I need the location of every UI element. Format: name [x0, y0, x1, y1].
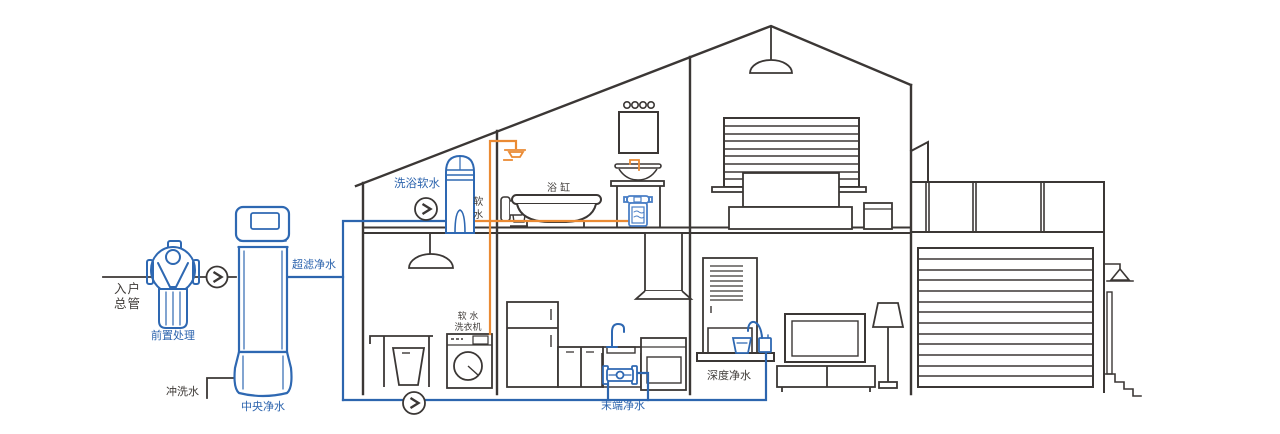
- shower-head-icon: [504, 150, 525, 160]
- fridge: [507, 302, 558, 387]
- pre-filter-unit: [147, 241, 199, 328]
- pendant-lamp-icon: [750, 60, 792, 73]
- bedroom: [712, 26, 892, 229]
- mirror: [619, 112, 658, 153]
- central-purifier-unit: [235, 207, 292, 396]
- flow-arrow-icon: [403, 392, 425, 414]
- laundry-room: [370, 233, 492, 388]
- washing-machine: [447, 334, 492, 388]
- house-water-system-diagram: 入户 总管 前置处理 超滤净水 中央净水 冲洗水 洗浴软水 软水 浴 缸 软 水…: [0, 0, 1280, 434]
- flow-arrow-icon: [207, 267, 228, 288]
- entry-steps: [1104, 374, 1141, 396]
- roof: [356, 26, 911, 186]
- kitchen-cabinet: [558, 347, 603, 387]
- garage: [911, 142, 1141, 396]
- bathroom-undersink-softener: [624, 196, 652, 226]
- diagram-canvas: [0, 0, 1280, 434]
- living-room: [697, 258, 903, 392]
- mirror-lights: [624, 102, 654, 108]
- bed: [729, 207, 852, 229]
- kitchen-faucet-icon: [607, 324, 624, 347]
- railing-corner: [911, 142, 928, 182]
- bath-softener-tank: [446, 156, 474, 233]
- flow-arrow-icon: [415, 198, 437, 220]
- flush-water-line: [207, 378, 236, 398]
- floor-lamp: [873, 303, 903, 388]
- exterior-lamp-icon: [1104, 264, 1133, 281]
- tv: [785, 314, 865, 362]
- railing-posts: [926, 182, 1044, 232]
- downspout: [1107, 292, 1112, 374]
- tv-stand: [777, 366, 875, 392]
- nightstand: [864, 203, 892, 229]
- laundry-basket: [393, 348, 424, 385]
- terminal-purifier-unit: [603, 366, 637, 384]
- bathtub: [512, 195, 601, 228]
- pendant-lamp-icon: [409, 254, 453, 268]
- range-hood: [636, 233, 691, 299]
- kitchen: [507, 233, 691, 390]
- garage-door-slats: [918, 259, 1093, 376]
- bed-headboard: [743, 173, 839, 207]
